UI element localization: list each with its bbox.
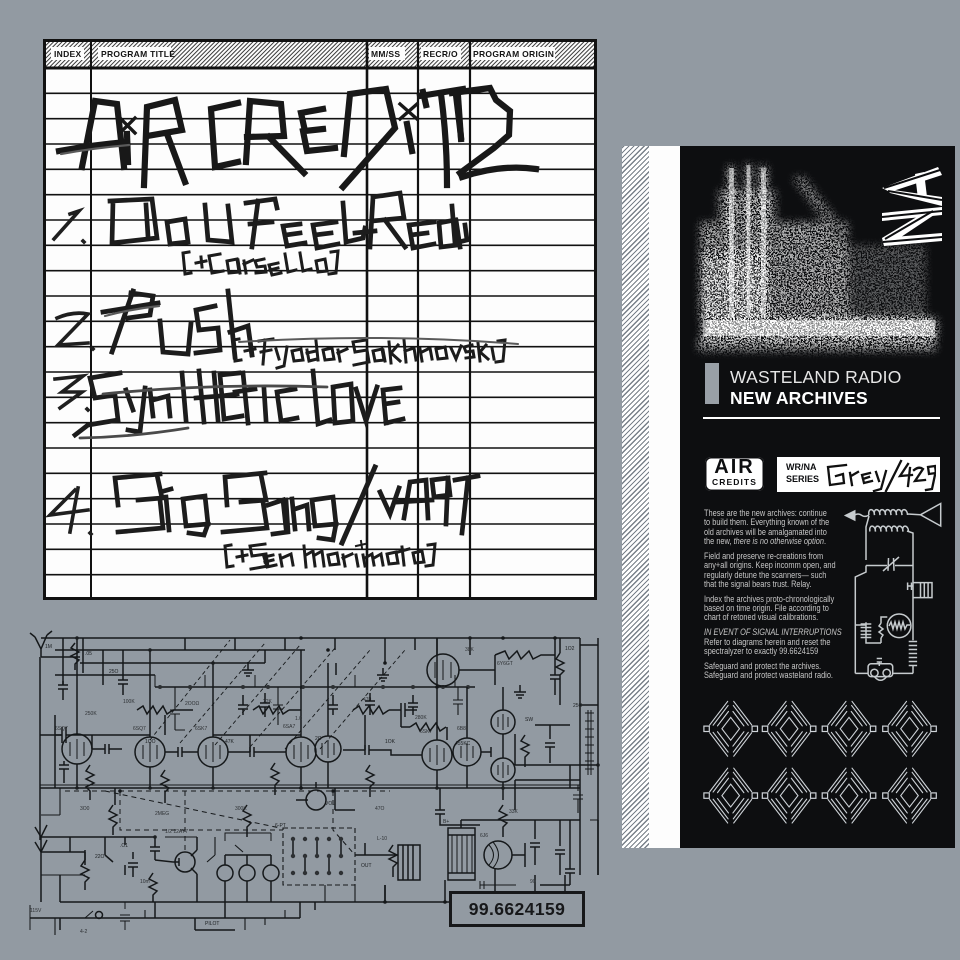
svg-text:1OO: 1OO [145, 739, 156, 745]
svg-text:6SQ7: 6SQ7 [55, 726, 68, 732]
svg-text:47O: 47O [375, 806, 385, 812]
svg-text:4-2: 4-2 [80, 929, 87, 935]
svg-text:38K: 38K [465, 647, 475, 653]
svg-text:6B8: 6B8 [457, 726, 466, 732]
svg-text:RECR/O: RECR/O [423, 49, 458, 59]
svg-text:3O0: 3O0 [80, 806, 90, 812]
svg-text:250K: 250K [85, 711, 97, 717]
svg-text:OUT: OUT [361, 863, 372, 869]
svg-text:10m: 10m [140, 879, 150, 885]
svg-text:B+: B+ [443, 819, 449, 825]
svg-text:22O: 22O [95, 854, 105, 860]
svg-text:6J6: 6J6 [480, 833, 488, 839]
svg-text:PILOT: PILOT [205, 921, 219, 927]
svg-text:L-10: L-10 [377, 836, 387, 842]
svg-text:6Y6GT: 6Y6GT [497, 661, 513, 667]
svg-text:115V: 115V [30, 908, 42, 914]
svg-text:47K: 47K [225, 739, 235, 745]
svg-text:280K: 280K [415, 715, 427, 721]
svg-text:6SA7: 6SA7 [283, 724, 295, 730]
svg-text:1O2: 1O2 [565, 646, 575, 652]
svg-text:2OOΩ: 2OOΩ [185, 701, 200, 707]
svg-text:2MEG: 2MEG [155, 811, 169, 817]
svg-text:25O: 25O [109, 669, 119, 675]
svg-text:PROGRAM TITLE: PROGRAM TITLE [101, 49, 175, 59]
svg-text:.O1: .O1 [120, 843, 128, 849]
svg-text:455KC: 455KC [455, 741, 471, 747]
svg-text:6SK7: 6SK7 [420, 729, 432, 735]
svg-text:1.0: 1.0 [295, 716, 302, 722]
svg-text:1OK: 1OK [385, 739, 396, 745]
svg-text:.05: .05 [85, 651, 92, 657]
svg-text:6-PT: 6-PT [275, 823, 286, 829]
svg-text:INDEX: INDEX [54, 49, 82, 59]
svg-text:PROGRAM ORIGIN: PROGRAM ORIGIN [473, 49, 554, 59]
svg-text:2O: 2O [315, 736, 322, 742]
svg-text:6SK7: 6SK7 [195, 726, 207, 732]
svg-text:1M: 1M [45, 644, 52, 650]
svg-text:6SQ7: 6SQ7 [133, 726, 146, 732]
svg-text:VOL: VOL [325, 801, 335, 807]
svg-text:90: 90 [530, 879, 536, 885]
svg-text:300K: 300K [235, 806, 247, 812]
svg-text:SW: SW [525, 717, 533, 723]
svg-text:100K: 100K [123, 699, 135, 705]
svg-text:33K: 33K [509, 809, 519, 815]
svg-text:MM/SS: MM/SS [371, 49, 400, 59]
svg-text:25O: 25O [573, 703, 583, 709]
